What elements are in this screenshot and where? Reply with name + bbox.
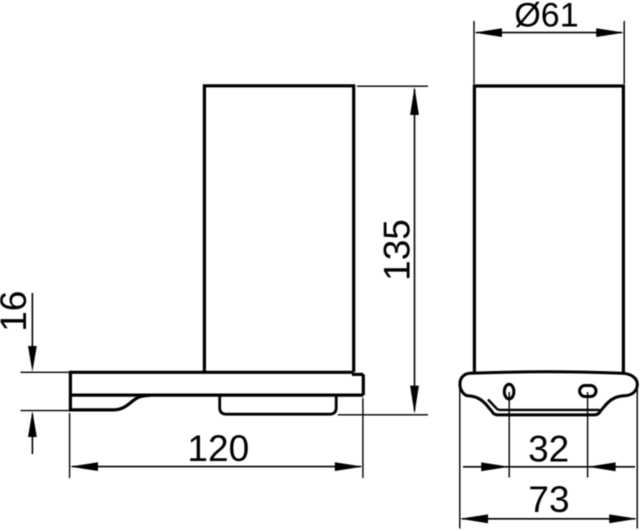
svg-text:120: 120 bbox=[187, 428, 249, 469]
svg-text:135: 135 bbox=[376, 219, 417, 281]
svg-text:Ø61: Ø61 bbox=[514, 0, 578, 35]
svg-text:73: 73 bbox=[528, 479, 569, 520]
svg-text:32: 32 bbox=[528, 428, 569, 469]
svg-text:16: 16 bbox=[0, 291, 34, 332]
